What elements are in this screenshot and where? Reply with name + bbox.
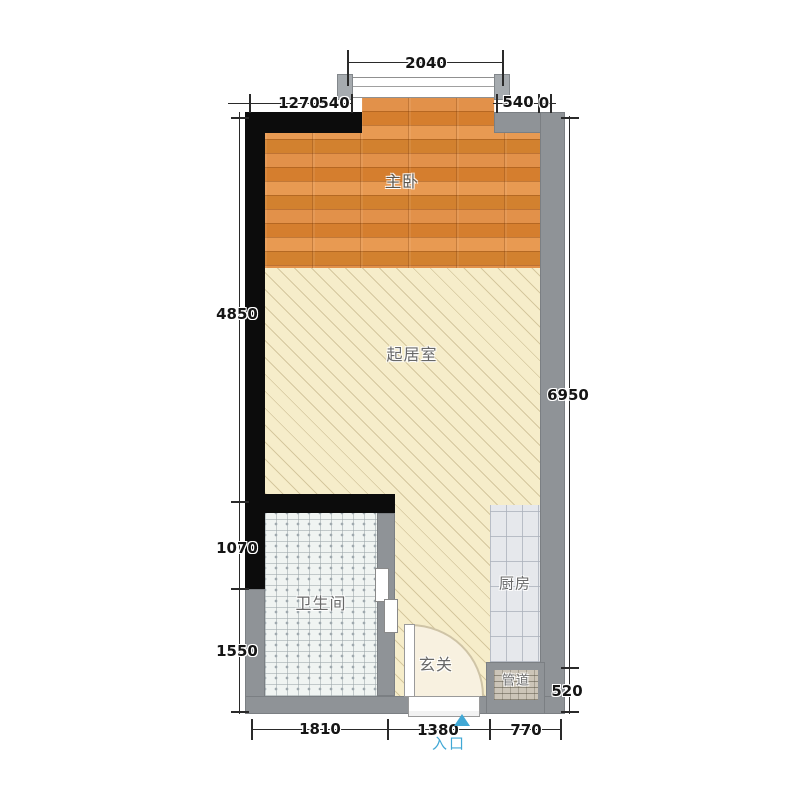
dim-label: 540 <box>502 93 533 111</box>
dim-tick <box>231 711 249 713</box>
window-glass-line <box>352 86 496 87</box>
room-label-foyer: 玄关 <box>419 651 453 675</box>
room-label-bedroom: 主卧 <box>385 168 419 192</box>
dim-label: 540 <box>318 94 349 112</box>
room-label-living-room: 起居室 <box>386 341 437 365</box>
wall-bathroom-top <box>245 494 395 513</box>
room-label-duct: 管道 <box>502 670 530 689</box>
dim-tick <box>231 117 249 119</box>
dim-line-left <box>239 112 240 714</box>
room-label-kitchen: 厨房 <box>499 573 531 594</box>
dim-label: 1070 <box>216 539 258 557</box>
bathroom-sliding-door-panel <box>375 568 389 602</box>
dim-tick <box>550 94 552 113</box>
window <box>351 77 497 98</box>
dim-label: 1810 <box>299 720 341 738</box>
dim-tick <box>351 94 353 113</box>
dim-tick <box>560 719 562 740</box>
dim-label: 4850 <box>216 305 258 323</box>
dim-label: 1270 <box>278 94 320 112</box>
dim-label: 520 <box>551 682 582 700</box>
dim-tick <box>249 94 251 113</box>
bathroom-sliding-door-panel <box>384 599 398 633</box>
dim-label: 1550 <box>216 642 258 660</box>
entry-door-leaf <box>404 624 415 697</box>
dim-tick <box>231 588 249 590</box>
dim-tick <box>347 50 349 86</box>
dim-tick <box>387 719 389 740</box>
dim-tick <box>561 117 579 119</box>
wall-left-upper <box>245 112 265 589</box>
dim-tick <box>231 501 249 503</box>
dim-line-right <box>569 116 570 714</box>
dim-tick <box>489 719 491 740</box>
wall-top-left <box>245 112 362 133</box>
dim-tick <box>496 94 498 113</box>
dim-label: 770 <box>510 721 541 739</box>
dim-label: 0 <box>539 94 549 112</box>
dim-label: 6950 <box>547 386 589 404</box>
wall-right <box>540 112 565 714</box>
dim-tick <box>251 719 253 740</box>
dim-tick <box>502 50 504 86</box>
dim-tick <box>561 667 579 669</box>
dim-label-top-width: 2040 <box>405 54 447 72</box>
entrance-arrow-icon <box>454 714 470 726</box>
entrance-label: 入口 <box>432 733 466 754</box>
room-label-bathroom: 卫生间 <box>295 590 346 614</box>
dim-tick <box>561 711 579 713</box>
floor-plan: 2040 1270 540 540 0 4850 1070 1550 6950 … <box>0 0 800 800</box>
